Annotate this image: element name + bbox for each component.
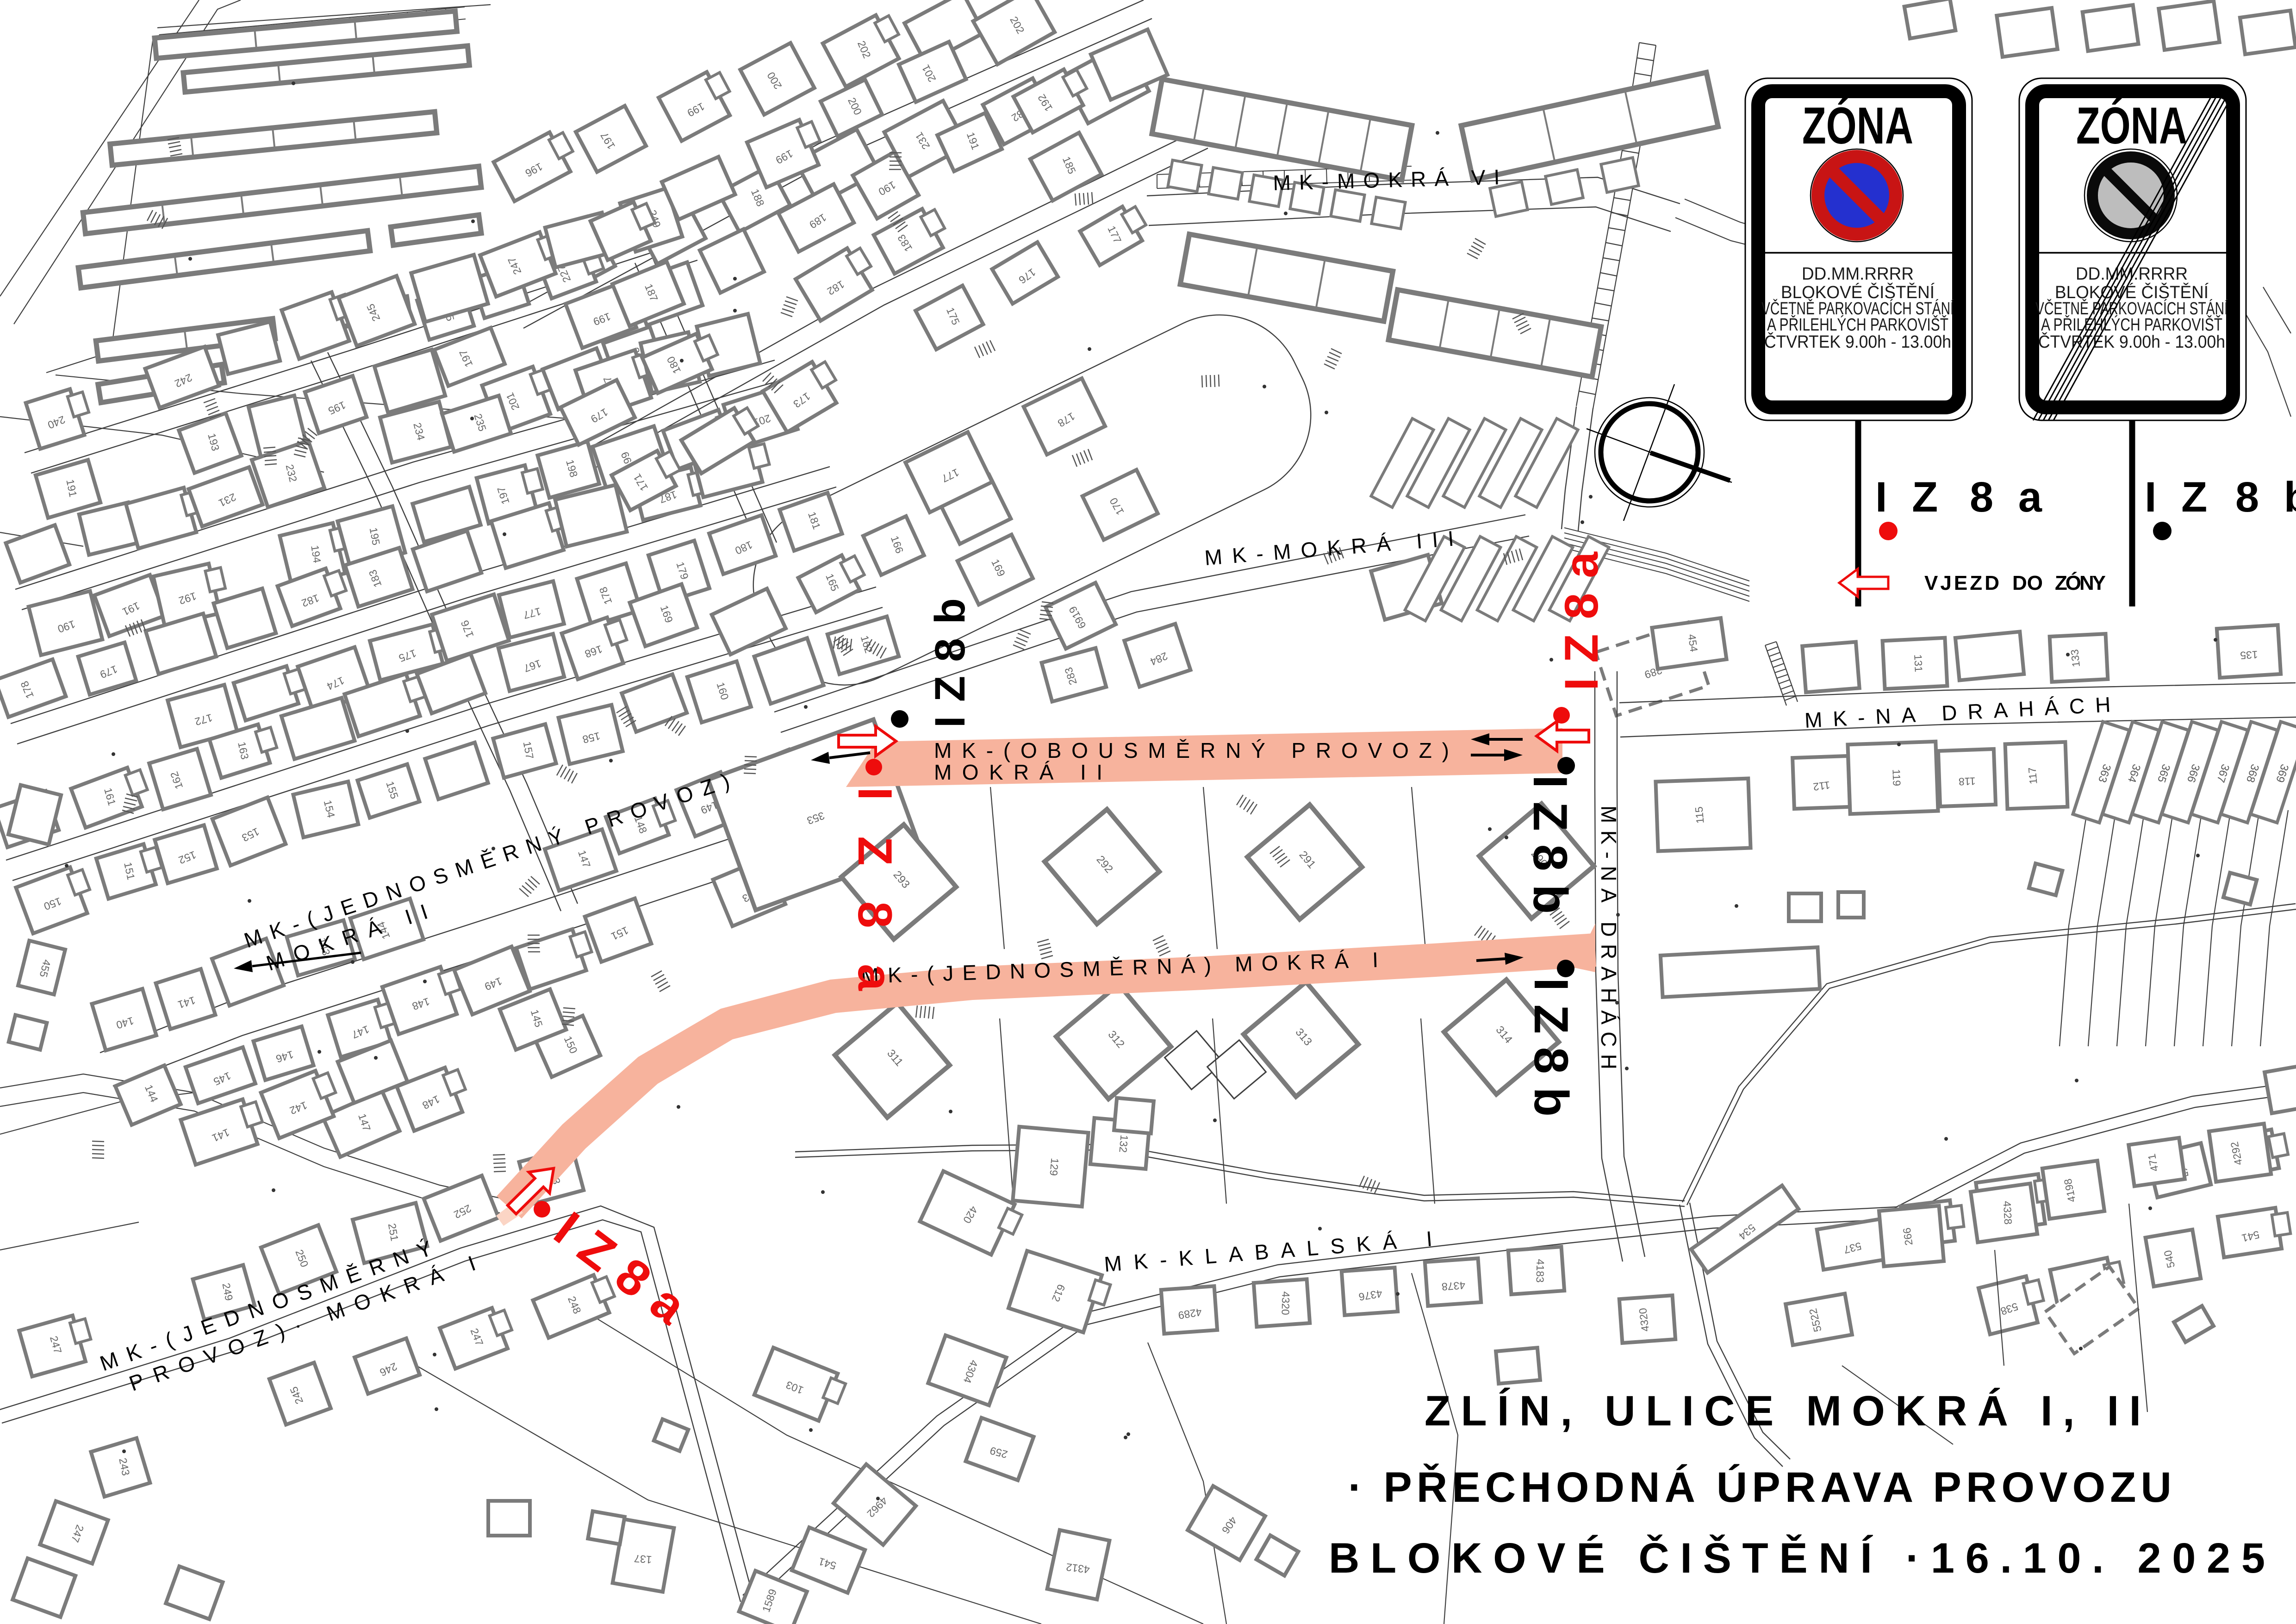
svg-text:ČTVRTEK 9.00h - 13.00h: ČTVRTEK 9.00h - 13.00h	[1764, 331, 1951, 352]
svg-text:133: 133	[2068, 649, 2082, 668]
svg-text:135: 135	[2240, 649, 2259, 662]
svg-text:4328: 4328	[2001, 1200, 2015, 1224]
svg-text:4378: 4378	[1441, 1279, 1466, 1293]
svg-text:VJEZD: VJEZD	[1924, 572, 1999, 594]
svg-text:8 b: 8 b	[2235, 474, 2296, 521]
svg-text:132: 132	[1117, 1134, 1130, 1153]
svg-text:A PŘILEHLÝCH PARKOVIŠŤ: A PŘILEHLÝCH PARKOVIŠŤ	[1767, 314, 1948, 335]
svg-text:DD.MM.RRRR: DD.MM.RRRR	[1802, 264, 1914, 284]
svg-text:· PŘECHODNÁ ÚPRAVA PROVOZU: · PŘECHODNÁ ÚPRAVA PROVOZU	[1348, 1463, 2172, 1511]
svg-text:ČTVRTEK 9.00h - 13.00h: ČTVRTEK 9.00h - 13.00h	[2038, 331, 2225, 352]
svg-text:117: 117	[2026, 767, 2039, 785]
svg-text:BLOKOVÉ ČIŠTĚNÍ ·16.10. 2025: BLOKOVÉ ČIŠTĚNÍ ·16.10. 2025	[1329, 1534, 2265, 1582]
svg-text:119: 119	[1890, 769, 1903, 787]
svg-text:I Z: I Z	[1875, 474, 1944, 521]
svg-text:DO: DO	[2012, 572, 2043, 594]
svg-text:ZÓNY: ZÓNY	[2055, 571, 2106, 594]
svg-text:129: 129	[1047, 1157, 1061, 1176]
svg-text:112: 112	[1812, 779, 1831, 793]
svg-text:8 a: 8 a	[1970, 474, 2048, 521]
svg-text:115: 115	[1692, 806, 1706, 824]
svg-text:137: 137	[634, 1552, 652, 1566]
svg-text:454: 454	[1686, 633, 1700, 653]
svg-text:ZÓNA: ZÓNA	[1802, 97, 1913, 155]
svg-text:4320: 4320	[1280, 1291, 1292, 1315]
svg-text:I Z 8 a: I Z 8 a	[1555, 551, 1608, 691]
svg-text:131: 131	[1912, 654, 1925, 673]
svg-text:118: 118	[1959, 775, 1976, 787]
svg-text:A PŘILEHLÝCH PARKOVIŠŤ: A PŘILEHLÝCH PARKOVIŠŤ	[2041, 314, 2222, 335]
svg-text:I Z: I Z	[2145, 474, 2214, 521]
svg-text:ZÓNA: ZÓNA	[2076, 97, 2187, 155]
svg-text:DD.MM.RRRR: DD.MM.RRRR	[2076, 264, 2188, 284]
svg-text:I Z 8 b: I Z 8 b	[1524, 978, 1578, 1117]
svg-text:4183: 4183	[1534, 1259, 1547, 1283]
svg-text:266: 266	[1901, 1227, 1915, 1246]
svg-text:I Z 8 b: I Z 8 b	[1523, 775, 1577, 914]
